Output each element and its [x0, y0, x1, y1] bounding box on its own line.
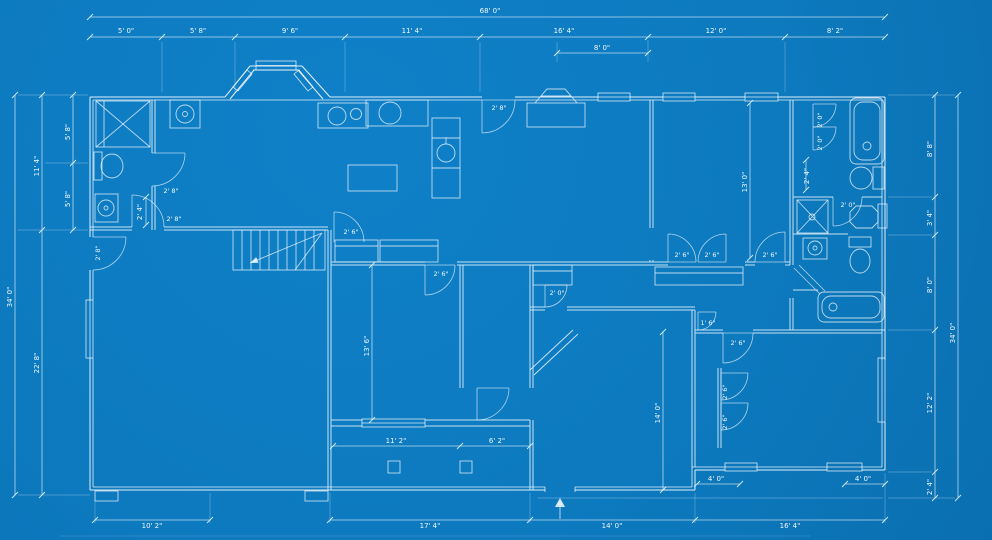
- door-label-laundry-b: 2' 8": [166, 215, 181, 223]
- dim-label-top: 8' 2": [827, 27, 843, 35]
- labels: 68' 0" 5' 0" 5' 8" 9' 6" 11' 4" 16' 4" 1…: [6, 7, 957, 530]
- dim-label-left-overall: 34' 0": [6, 287, 14, 308]
- dim-label-top: 5' 0": [118, 27, 134, 35]
- door-label-kitchen: 2' 6": [343, 228, 358, 236]
- kitchen-counter: [318, 100, 460, 198]
- door-label-bedroom3: 2' 6": [762, 251, 777, 259]
- door-label-closet-left: 2' 6": [674, 251, 689, 259]
- dim-label-left: 11' 4": [33, 156, 41, 177]
- dimension-lines: [12, 14, 961, 523]
- interior-walls: [90, 100, 885, 490]
- floor-plan-drawing: 68' 0" 5' 0" 5' 8" 9' 6" 11' 4" 16' 4" 1…: [0, 0, 992, 540]
- door-laundry-a: [152, 153, 185, 186]
- dim-label-bottom: 14' 0": [602, 522, 623, 530]
- tub-drain: [829, 303, 837, 311]
- dim-label-porch-left: 4' 0": [708, 475, 724, 483]
- window: [86, 300, 93, 358]
- dim-label-hall-width: 6' 2": [489, 437, 505, 445]
- toilet-laundry-bath: [94, 152, 123, 180]
- stairs: [233, 230, 325, 270]
- toilet-2: [849, 237, 871, 273]
- door-label-hall: 2' 0": [549, 289, 564, 297]
- fireplace: [527, 89, 585, 127]
- door-label-side-entry: 2' 8": [94, 245, 102, 260]
- bay-window-walls: [225, 66, 330, 99]
- fixtures: [94, 89, 887, 519]
- door-label-linen: 1' 6": [700, 319, 715, 327]
- dim-label-right: 8' 8": [926, 141, 934, 157]
- dim-label-closet-right: 2' 4": [803, 168, 811, 184]
- closet-shelves-hall-left: [335, 240, 438, 262]
- door-label-closet-right: 2' 6": [704, 251, 719, 259]
- door-label-bifold-a: 2' 0": [816, 112, 824, 127]
- utility-sink: [803, 238, 827, 259]
- kitchen-island: [348, 165, 397, 191]
- door-label-bedroom4: 2' 6": [730, 339, 745, 347]
- corner-fireplace-wall: [530, 330, 578, 375]
- door-label-bath: 2' 0": [840, 201, 855, 209]
- tub-drain: [863, 142, 871, 150]
- shower: [797, 200, 828, 233]
- dim-label-bedroom3-depth: 13' 0": [741, 172, 749, 193]
- dim-label-top: 12' 0": [706, 27, 727, 35]
- bay-window-left: [233, 70, 252, 91]
- dim-label-top-sub: 8' 0": [594, 44, 610, 52]
- porch-posts: [95, 461, 472, 501]
- dim-label-bedroom4-depth: 14' 0": [654, 403, 662, 424]
- dim-label-bottom: 17' 4": [420, 522, 441, 530]
- bathtub-1: [850, 98, 884, 164]
- dim-label-bottom: 10' 2": [142, 522, 163, 530]
- toilet-1: [850, 167, 884, 189]
- dim-label-left-inner: 5' 8": [64, 124, 72, 140]
- washer: [170, 100, 200, 128]
- window: [878, 358, 885, 422]
- windows: [86, 61, 885, 471]
- closet-shelf-entry: [533, 265, 572, 285]
- kitchen-sink: [437, 144, 455, 162]
- bay-window-right: [294, 70, 313, 91]
- dim-label-overall-width: 68' 0": [480, 7, 501, 15]
- dim-label-top: 11' 4": [402, 27, 423, 35]
- dim-label-right: 12' 2": [926, 393, 934, 414]
- door-label-bedroom2: 2' 6": [433, 270, 448, 278]
- door-label-rear-entry: 2' 8": [491, 104, 506, 112]
- door-label-bifold-b: 2' 0": [816, 135, 824, 150]
- door-hall-end: [477, 388, 509, 420]
- door-kitchen: [334, 212, 364, 242]
- blueprint-canvas: 68' 0" 5' 0" 5' 8" 9' 6" 11' 4" 16' 4" 1…: [0, 0, 992, 540]
- dim-label-right-overall: 34' 0": [949, 323, 957, 344]
- dim-label-porch-right: 4' 0": [855, 475, 871, 483]
- door-label-bedroom4-closet-a: 2' 6": [721, 384, 729, 399]
- dimension-ticks: [12, 14, 961, 523]
- dim-label-bottom: 16' 4": [780, 522, 801, 530]
- entry-arrow: [545, 487, 575, 519]
- dim-label-left-inner: 5' 8": [64, 191, 72, 207]
- dim-label-top: 16' 4": [554, 27, 575, 35]
- dim-label-bedroom2-width: 11' 2": [386, 437, 407, 445]
- dim-label-right: 2' 4": [926, 479, 934, 495]
- sink-laundry-bath: [95, 194, 118, 222]
- door-label-bedroom4-closet-b: 2' 6": [721, 414, 729, 429]
- bathtub-2: [818, 292, 884, 322]
- laundry-closet: [96, 101, 150, 147]
- closet-shelf-bedroom3: [655, 267, 743, 285]
- dim-label-top: 9' 6": [282, 27, 298, 35]
- dim-label-top: 5' 8": [190, 27, 206, 35]
- dim-label-right: 3' 4": [926, 210, 934, 226]
- dim-label-right: 8' 0": [926, 277, 934, 293]
- door-bedroom4: [723, 333, 753, 363]
- dim-label-closet-left: 2' 4": [136, 204, 144, 220]
- door-label-laundry-a: 2' 8": [163, 187, 178, 195]
- dim-label-bedroom2-depth: 13' 6": [363, 336, 371, 357]
- dim-label-left: 22' 8": [33, 353, 41, 374]
